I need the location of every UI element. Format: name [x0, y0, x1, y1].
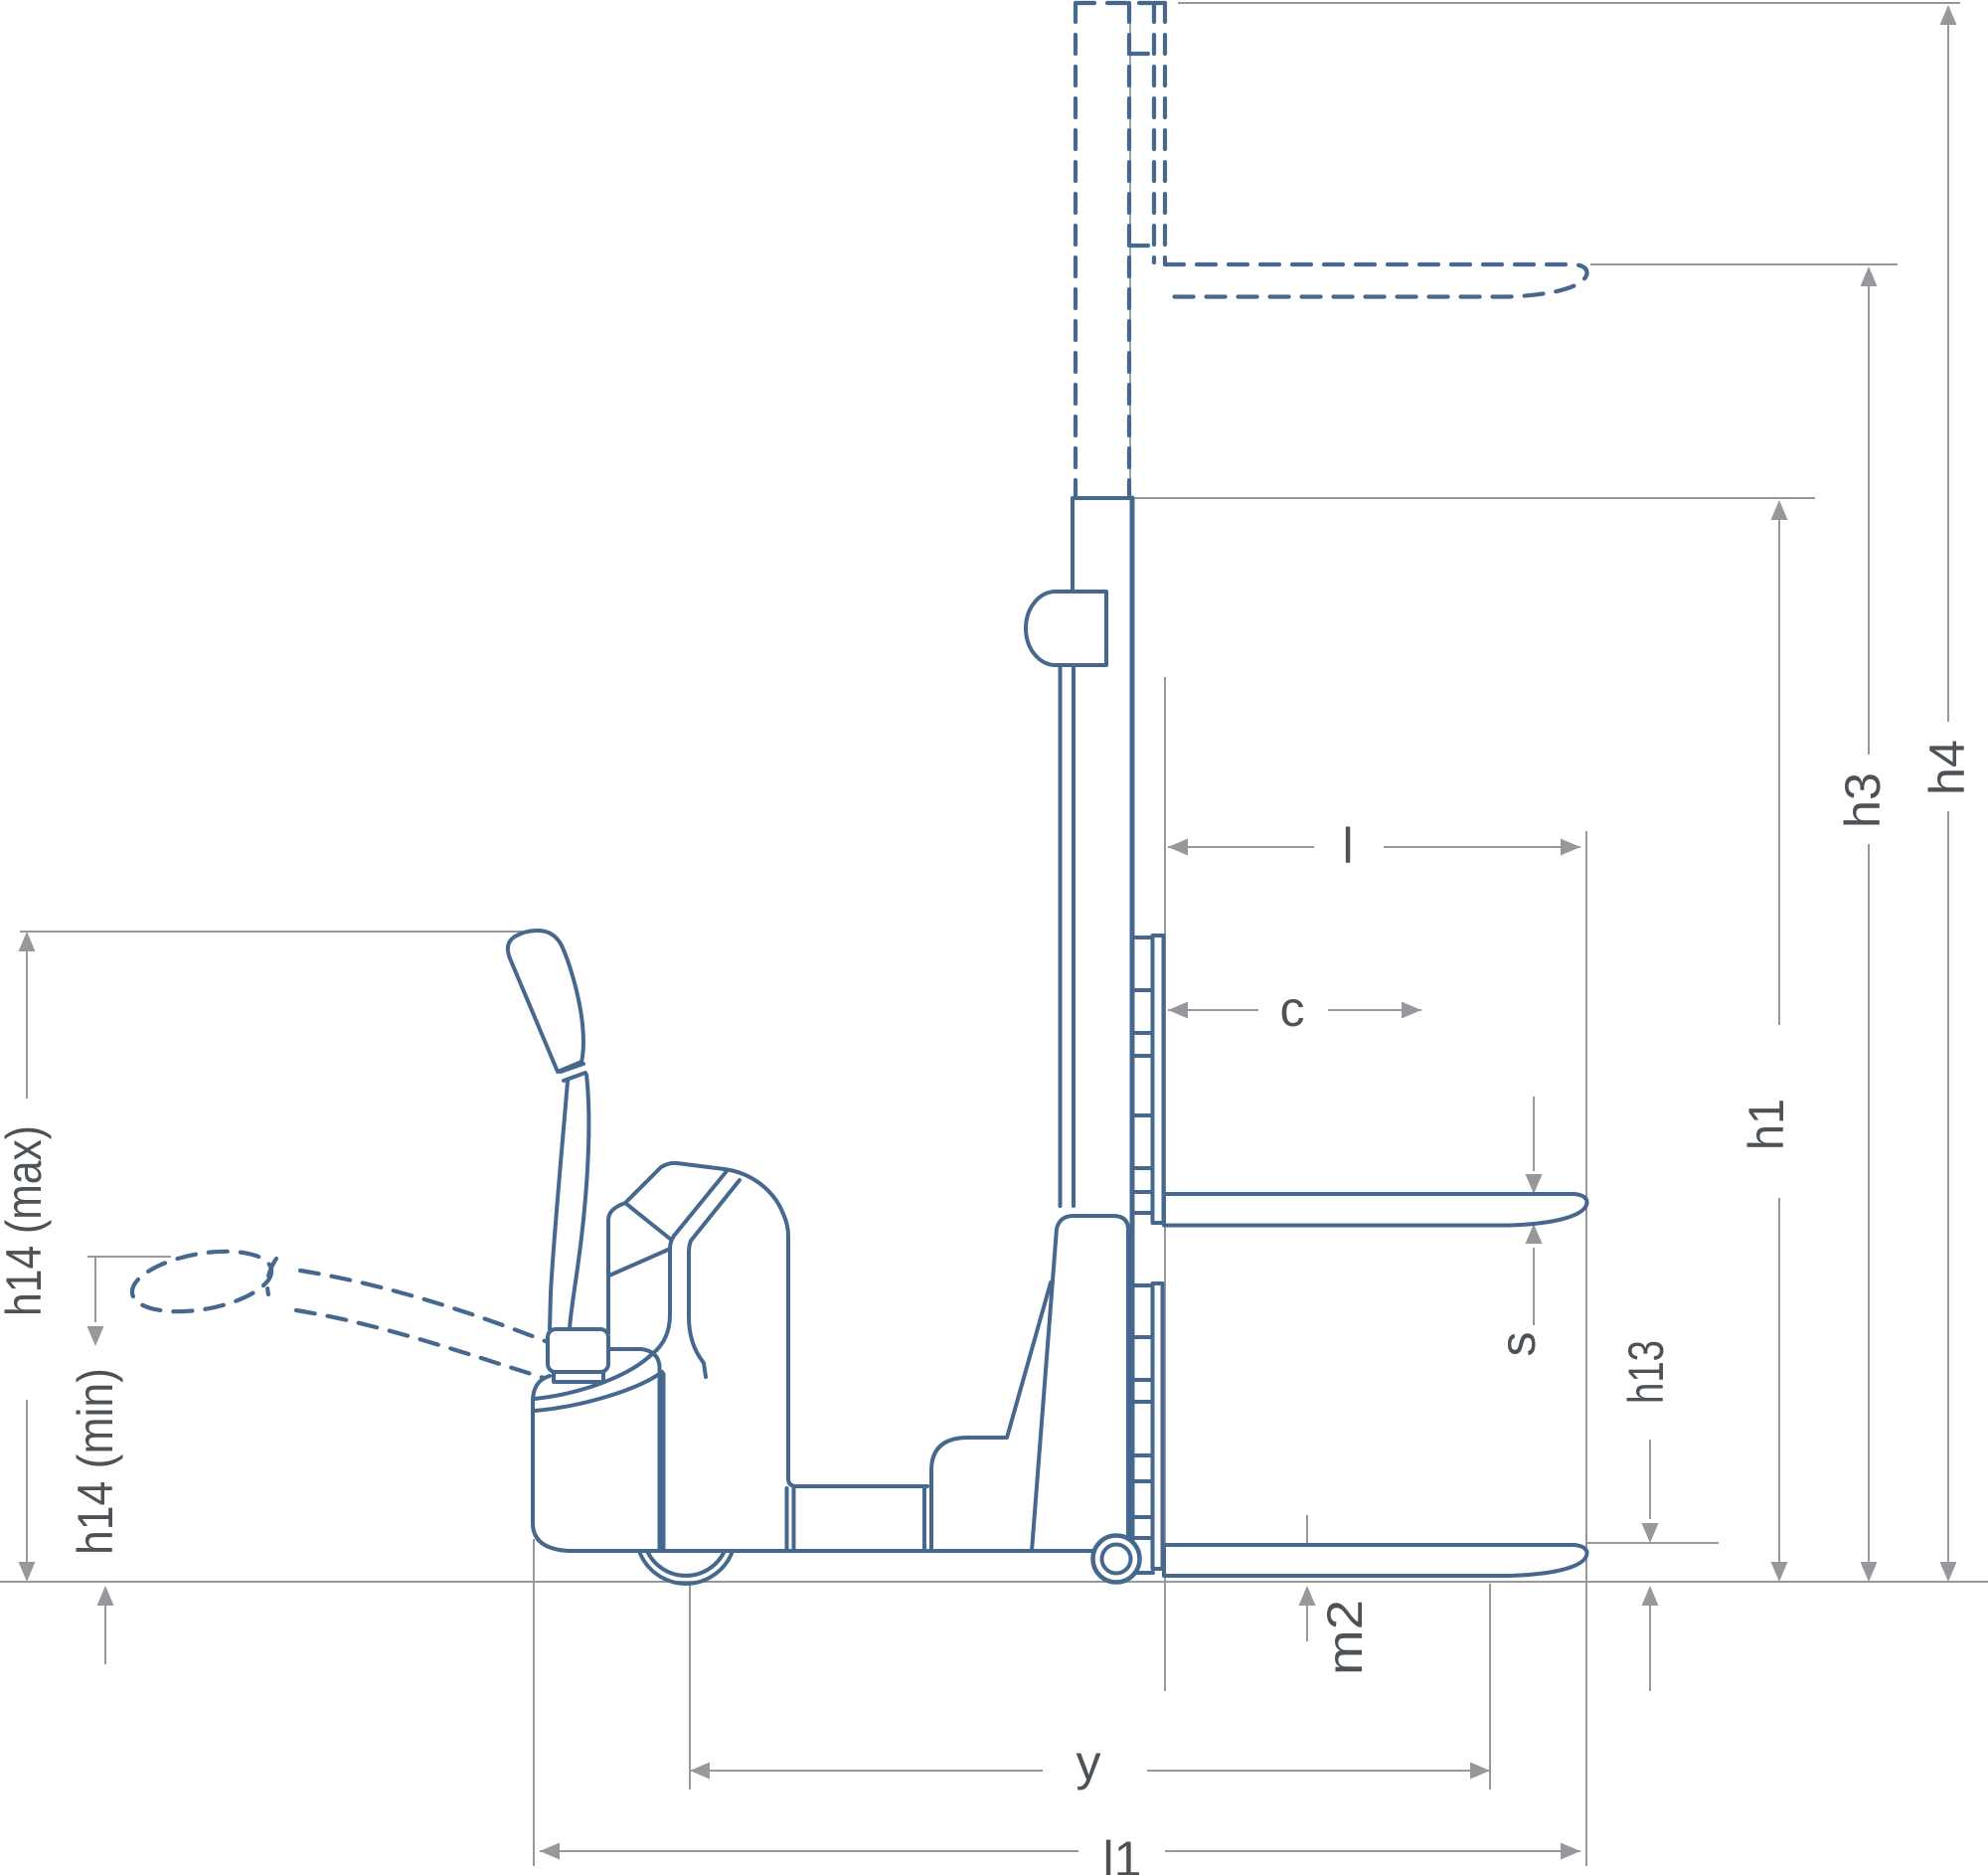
- svg-text:h1: h1: [1739, 1099, 1794, 1150]
- svg-text:h14 (min): h14 (min): [68, 1368, 123, 1555]
- svg-text:l: l: [1342, 818, 1353, 874]
- svg-text:l1: l1: [1103, 1831, 1142, 1875]
- svg-text:h4: h4: [1919, 740, 1975, 795]
- svg-text:y: y: [1077, 1735, 1101, 1790]
- svg-text:h3: h3: [1835, 772, 1891, 828]
- svg-text:h14 (max): h14 (max): [0, 1125, 52, 1316]
- svg-text:h13: h13: [1618, 1340, 1674, 1404]
- svg-text:c: c: [1280, 981, 1305, 1037]
- svg-text:s: s: [1490, 1332, 1546, 1357]
- svg-text:m2: m2: [1317, 1600, 1373, 1675]
